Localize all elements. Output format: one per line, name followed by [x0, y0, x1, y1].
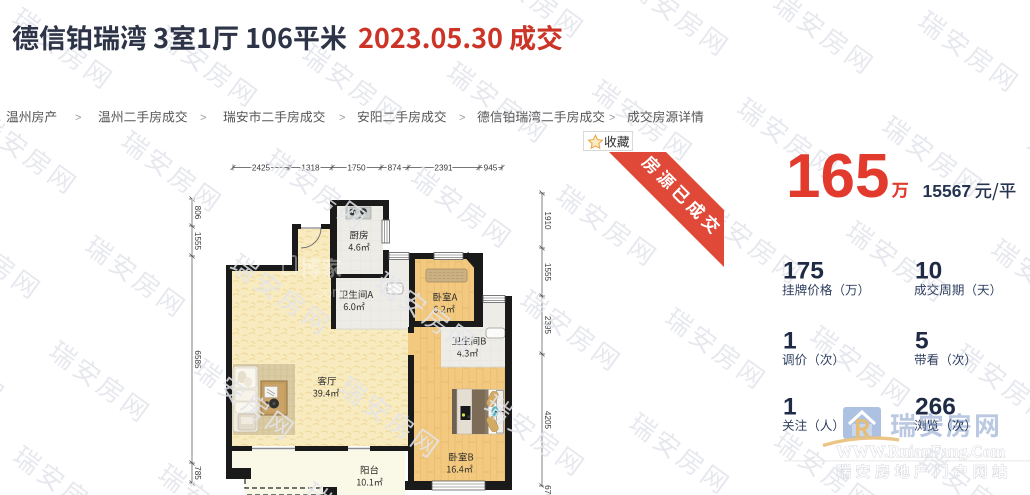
svg-text:165: 165 — [786, 142, 889, 211]
svg-text:2425: 2425 — [252, 163, 271, 172]
svg-text:806: 806 — [193, 206, 202, 220]
svg-text:>: > — [200, 112, 206, 124]
svg-text:>: > — [339, 112, 345, 124]
svg-text:6585: 6585 — [193, 350, 202, 369]
svg-text:1555: 1555 — [193, 232, 202, 251]
svg-text:266: 266 — [915, 393, 956, 420]
svg-text:>: > — [459, 112, 465, 124]
svg-text:785: 785 — [193, 466, 202, 480]
svg-text:675: 675 — [543, 485, 552, 495]
svg-text:10: 10 — [915, 258, 942, 285]
svg-text:1555: 1555 — [543, 263, 552, 282]
svg-text:5: 5 — [915, 328, 929, 355]
svg-text:.com: .com — [312, 284, 345, 301]
svg-text:874: 874 — [388, 163, 402, 172]
svg-text:175: 175 — [783, 258, 824, 285]
svg-text:>: > — [75, 112, 81, 124]
svg-text:1750: 1750 — [347, 163, 366, 172]
svg-text:2391: 2391 — [434, 163, 453, 172]
svg-text:1: 1 — [783, 393, 797, 420]
svg-text:945: 945 — [484, 163, 498, 172]
svg-text:1910: 1910 — [543, 211, 552, 230]
svg-text:>: > — [609, 112, 615, 124]
svg-text:1: 1 — [783, 328, 797, 355]
svg-text:WWW.RuianFang.Com: WWW.RuianFang.Com — [836, 442, 1005, 461]
svg-text:4205: 4205 — [543, 411, 552, 430]
svg-text:15567: 15567 — [923, 181, 972, 201]
